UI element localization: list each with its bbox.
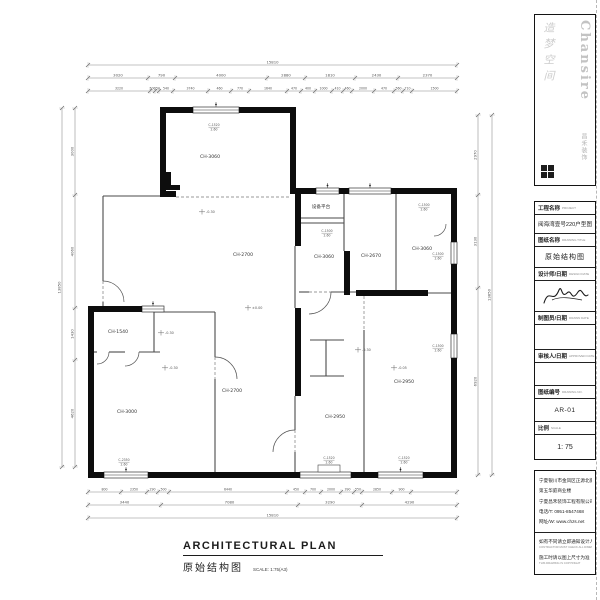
room-label: CH-2700 [222,388,242,394]
svg-text:4060: 4060 [69,246,74,256]
svg-text:C-2350: C-2350 [118,458,129,462]
svg-text:2350: 2350 [130,487,138,491]
svg-text:500: 500 [160,487,166,491]
ac-unit-symbol [318,465,340,472]
svg-text:C-1500: C-1500 [432,344,443,348]
footer-scale-note: SCALE: 1:75(A3) [253,567,288,572]
svg-text:450: 450 [293,487,299,491]
note-line-1-en: CONTRACTOR MUST CHECK ALL DIMENSIONS ON … [539,545,592,549]
door-swing-arcs [97,224,446,452]
footer-title-en: ARCHITECTURAL PLAN [183,540,383,556]
svg-text:2.60: 2.60 [324,234,331,238]
svg-text:C-1500: C-1500 [432,252,443,256]
svg-text:3000: 3000 [69,146,74,156]
drawing-footer: ARCHITECTURAL PLAN 原始结构图 SCALE: 1:75(A3) [183,540,383,574]
floor-plan-svg: 1581030207904000288018102430237032205001… [0,0,534,600]
svg-text:C-1520: C-1520 [208,123,219,127]
svg-text:7080: 7080 [225,499,235,504]
brand-tagline: 造梦空间 [540,22,556,86]
svg-text:2880: 2880 [281,72,291,77]
scale-label: 比例SCALE [535,422,595,435]
company-seal-icon [541,165,554,178]
company-website: 网址/W: www.chzs.net [539,517,592,527]
svg-text:1500: 1500 [430,86,438,90]
brand-sub-text: 昌禾装饰 [579,133,588,161]
logo-box: Chansire 造梦空间 昌禾装饰 [534,14,596,186]
svg-text:4000: 4000 [216,72,226,77]
svg-text:2.60: 2.60 [435,349,442,353]
svg-text:2.60: 2.60 [435,257,442,261]
svg-text:540: 540 [163,86,169,90]
svg-text:2430: 2430 [372,72,382,77]
company-address-2: 第五华庭商业楼 [539,486,592,496]
svg-text:3130: 3130 [472,236,477,246]
svg-text:C-1500: C-1500 [321,229,332,233]
svg-text:-0.05: -0.05 [398,366,407,370]
svg-text:2.60: 2.60 [326,461,333,465]
svg-text:460: 460 [344,86,350,90]
project-label: 工程名称PROJECT [535,202,595,215]
auditor-label: 审核人/日期APPROVED DATE [535,350,595,363]
svg-text:390: 390 [344,487,350,491]
svg-text:460: 460 [216,86,222,90]
svg-text:-0.30: -0.30 [206,210,215,214]
room-label: 设备平台 [312,203,331,210]
dimension-lines: 1581030207904000288018102430237032205001… [56,59,495,521]
svg-text:1810: 1810 [325,72,335,77]
level-marks: -0.30±0.00-0.30-0.30-0.30-0.05 [158,209,407,371]
svg-text:2.60: 2.60 [401,461,408,465]
svg-text:±0.00: ±0.00 [252,306,262,310]
room-label: CH-2950 [394,379,414,385]
svg-text:-0.30: -0.30 [362,348,371,352]
drawing-title-label: 图纸名称DRAWING TITLE [535,234,595,247]
room-label: CH-2670 [361,253,381,259]
svg-text:790: 790 [158,72,166,77]
svg-text:2.60: 2.60 [121,463,128,467]
designer-signature [535,281,595,312]
svg-text:550: 550 [355,487,361,491]
svg-text:13850: 13850 [486,288,491,301]
scale-value: 1: 75 [535,435,595,459]
svg-text:2000: 2000 [327,487,335,491]
svg-text:700: 700 [310,487,316,491]
company-phone: 电话/T: 0951-8547468 [539,507,592,517]
svg-text:-0.30: -0.30 [165,331,174,335]
svg-text:2970: 2970 [472,150,477,160]
project-name: 阅海湾壹号220户型图 [535,215,595,234]
svg-text:15810: 15810 [266,59,279,64]
svg-text:2370: 2370 [423,72,433,77]
sheet-edge-mark [596,0,597,600]
svg-text:800: 800 [101,487,107,491]
svg-text:1640: 1640 [264,86,272,90]
svg-text:4620: 4620 [69,408,74,418]
svg-text:C-1520: C-1520 [323,456,334,460]
room-label: CH-3060 [314,254,334,260]
svg-text:6440: 6440 [224,487,232,491]
svg-text:2850: 2850 [373,487,381,491]
svg-text:710: 710 [404,86,410,90]
footer-title-cn: 原始结构图 [183,559,243,574]
designer-label: 设计师/日期DESIGN DATE [535,268,595,281]
svg-text:6920: 6920 [472,376,477,386]
room-label: CH-2950 [325,414,345,420]
svg-text:470: 470 [291,86,297,90]
general-notes: 如有不同请立即通知设计人员 CONTRACTOR MUST CHECK ALL … [535,533,595,575]
svg-text:290: 290 [149,487,155,491]
drawing-number-label: 图纸编号DRAWING NO. [535,386,595,399]
drawing-sheet: 1581030207904000288018102430237032205001… [0,0,600,600]
svg-text:400: 400 [305,86,311,90]
title-panel: Chansire 造梦空间 昌禾装饰 工程名称PROJECT 阅海湾壹号220户… [534,14,596,575]
svg-text:2.60: 2.60 [421,208,428,212]
room-label: CH-2700 [233,252,253,258]
svg-text:3020: 3020 [113,72,123,77]
note-line-1: 如有不同请立即通知设计人员 [539,538,592,545]
room-label: CH-1540 [108,329,128,335]
svg-text:3290: 3290 [325,499,335,504]
interior-walls [88,194,451,472]
svg-text:3220: 3220 [115,86,123,90]
note-line-2: 施工时请以图上尺寸为准 [539,554,592,561]
svg-text:C-1500: C-1500 [418,203,429,207]
company-name: 宁夏昌禾装饰工程有限公司 [539,497,592,507]
room-label: CH-3000 [117,409,137,415]
drafter-value-empty [535,325,595,350]
drawing-title: 原始结构图 [535,247,595,268]
svg-text:410: 410 [334,86,340,90]
svg-text:13850: 13850 [56,281,61,294]
svg-text:1000: 1000 [319,86,327,90]
svg-text:1430: 1430 [69,329,74,339]
title-block: 工程名称PROJECT 阅海湾壹号220户型图 图纸名称DRAWING TITL… [534,201,596,460]
svg-text:2000: 2000 [359,86,367,90]
company-info-box: 宁夏银川市金凤区正源北街 第五华庭商业楼 宁夏昌禾装饰工程有限公司 电话/T: … [534,470,596,575]
svg-text:150: 150 [154,86,160,90]
drawing-number: AR-01 [535,399,595,422]
company-address-1: 宁夏银川市金凤区正源北街 [539,476,592,486]
room-label: CH-3060 [412,246,432,252]
svg-text:4290: 4290 [405,499,415,504]
svg-text:C-1520: C-1520 [398,456,409,460]
auditor-value-empty [535,363,595,386]
svg-text:2.60: 2.60 [211,128,218,132]
structural-walls [88,107,457,478]
svg-text:770: 770 [237,86,243,90]
svg-text:15810: 15810 [266,512,279,517]
svg-text:-0.30: -0.30 [169,366,178,370]
svg-text:560: 560 [395,86,401,90]
svg-text:3440: 3440 [120,499,130,504]
svg-text:470: 470 [381,86,387,90]
note-line-2-en: THIS DRAWING IS COPYRIGHT [539,561,592,565]
drafter-label: 制图员/日期DRAWN DATE [535,312,595,325]
company-info: 宁夏银川市金凤区正源北街 第五华庭商业楼 宁夏昌禾装饰工程有限公司 电话/T: … [535,471,595,533]
brand-logo: Chansire [577,20,592,101]
room-label: CH-3060 [200,154,220,160]
svg-text:3740: 3740 [186,86,194,90]
svg-text:900: 900 [398,487,404,491]
